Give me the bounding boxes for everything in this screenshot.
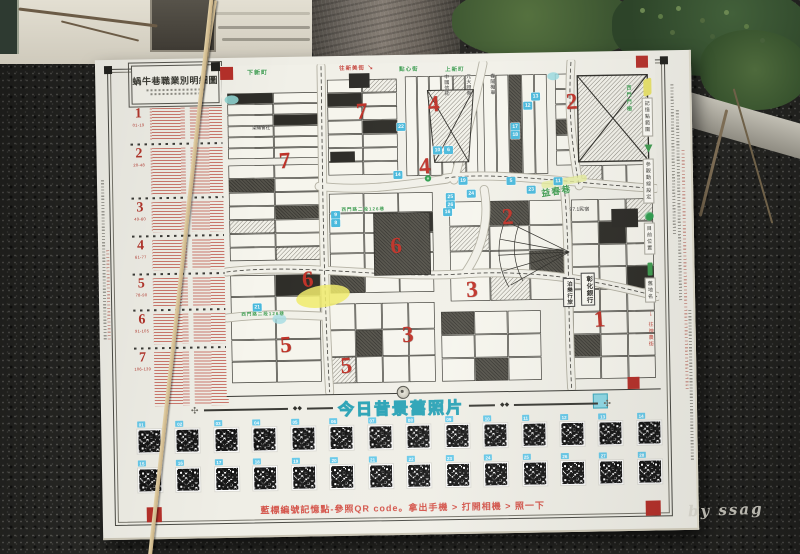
legend-section: 101-19 (130, 106, 225, 142)
street-label: 益春巷 (540, 182, 572, 200)
poi-label: 彰化銀行 (581, 273, 596, 306)
street-label: 點心街 (399, 65, 419, 73)
side-legend-item: 目前位置 (644, 211, 656, 254)
qr-code-section: 0102030405060708091011121314 15161718192… (137, 412, 662, 492)
legend-separator (134, 346, 228, 350)
qr-item: 28 (638, 451, 663, 483)
qr-item: 05 (291, 418, 316, 450)
flourish-icon: ✣ (191, 406, 199, 415)
legend-zone-range: 106-139 (134, 366, 151, 371)
oldname-bar-icon (647, 262, 652, 275)
qr-code (638, 459, 662, 483)
qr-number-chip: 12 (560, 414, 568, 420)
qr-code (406, 424, 430, 448)
title-subtext-line (146, 88, 204, 91)
qr-number-chip: 09 (445, 416, 453, 422)
qr-number-chip: 10 (483, 415, 491, 421)
legend-section: 220-48 (130, 146, 225, 196)
qr-item: 04 (253, 419, 278, 451)
qr-item: 13 (599, 413, 624, 445)
qr-code (137, 429, 161, 453)
qr-item: 19 (292, 457, 317, 489)
legend-zone-range: 78-90 (136, 292, 148, 297)
qr-number-chip: 15 (138, 460, 146, 466)
qr-number-chip: 02 (176, 421, 184, 427)
zone-number: 5 (279, 332, 292, 359)
qr-item: 02 (176, 420, 201, 452)
qr-item: 27 (599, 452, 624, 484)
legend-zone-number: 2 (135, 147, 142, 161)
qr-item: 18 (253, 458, 278, 490)
zone-number: 3 (401, 321, 414, 348)
qr-item: 03 (214, 420, 239, 452)
qr-number-chip: 23 (445, 455, 453, 461)
stair-shadow (222, 38, 310, 41)
banner-rule (204, 408, 288, 411)
qr-number-chip: 16 (176, 460, 184, 466)
qr-code (292, 465, 316, 489)
zone-number: 1 (593, 306, 606, 333)
legend-separator (131, 196, 225, 200)
banner-rule (469, 405, 495, 407)
legend-zone-range: 61-77 (135, 254, 147, 259)
qr-code (522, 461, 546, 485)
window (0, 0, 19, 54)
stair-shadow (218, 26, 310, 29)
banner-rule (307, 408, 333, 410)
margin-text-strip (682, 150, 689, 390)
qr-number-chip: 14 (637, 413, 645, 419)
map-marker: 5 (506, 177, 515, 185)
legend-zone-number: 1 (135, 107, 142, 121)
qr-item: 09 (445, 416, 470, 448)
map-marker: 25 (446, 193, 455, 201)
qr-number-chip: 26 (561, 453, 569, 459)
map-marker: 24 (467, 190, 476, 198)
legend-zone-range: 01-19 (133, 122, 145, 127)
building-wall (0, 0, 312, 64)
qr-code (176, 428, 200, 452)
zone-number: 7 (355, 98, 368, 125)
qr-code (484, 462, 508, 486)
qr-number-chip: 05 (291, 419, 299, 425)
legend-zone-number: 6 (138, 313, 145, 327)
side-legend-label: 記憶點範圍 (642, 98, 654, 137)
margin-text-strip (676, 110, 682, 300)
zone-number: 7 (278, 148, 291, 175)
qr-number-chip: 01 (137, 421, 145, 427)
legend-zone-number: 4 (137, 239, 144, 253)
qr-item: 17 (215, 459, 240, 491)
legend-item-lines (153, 312, 228, 345)
qr-item: 12 (560, 414, 585, 446)
qr-code (561, 461, 585, 485)
zone-number: 4 (427, 91, 440, 118)
legend-separator (133, 308, 227, 312)
zone-number: 2 (565, 89, 578, 116)
photographer-watermark: by ssag (688, 500, 764, 521)
map-marker: 16 (443, 208, 452, 216)
qr-number-chip: 22 (407, 456, 415, 462)
qr-number-chip: 17 (215, 459, 223, 465)
poi-label: 元大證券 (465, 74, 472, 96)
side-legend-label: 參觀動線設定 (643, 158, 655, 203)
map-marker: 23 (527, 186, 536, 194)
qr-code (176, 467, 200, 491)
zone-number: 4 (418, 153, 431, 180)
qr-number-chip: 03 (214, 420, 222, 426)
map-marker: 18 (511, 131, 520, 139)
qr-number-chip: 24 (484, 454, 492, 460)
legend-item-lines (153, 276, 228, 307)
qr-code (291, 426, 315, 450)
qr-code (637, 420, 661, 444)
hand-drawn-map: 7744226633551221312141061925262416511239… (221, 58, 661, 396)
zone-number: 2 (501, 204, 514, 231)
margin-text-strip (688, 310, 694, 460)
margin-text-strip (670, 84, 676, 234)
qr-number-chip: 13 (599, 413, 607, 419)
side-legend-item: 參觀動線設定 (642, 144, 654, 203)
qr-item: 10 (483, 415, 508, 447)
qr-number-chip: 04 (253, 419, 261, 425)
qr-code (445, 424, 469, 448)
qr-number-chip: 11 (522, 415, 530, 421)
qr-item: 22 (407, 455, 432, 487)
map-marker: 21 (253, 303, 262, 311)
qr-number-chip: 19 (292, 458, 300, 464)
side-legend-label: 往神農街 (646, 319, 656, 349)
qr-number-chip: 27 (599, 452, 607, 458)
flourish-icon: ✣ (603, 399, 611, 408)
qr-code (599, 460, 623, 484)
qr-code (446, 463, 470, 487)
legend-separator (130, 142, 224, 146)
leaves (640, 8, 645, 13)
side-legend-item: 舊地名 (644, 262, 656, 303)
map-corner-black-square (211, 62, 220, 71)
legend-separator (132, 234, 226, 238)
qr-item: 26 (561, 453, 586, 485)
qr-number-chip: 25 (522, 454, 530, 460)
diamond-icon: ◆◆ (500, 402, 509, 408)
qr-code (253, 466, 277, 490)
foliage (700, 30, 800, 110)
frame-corner-square (104, 66, 112, 74)
qr-item: 21 (369, 456, 394, 488)
qr-number-chip: 08 (406, 417, 414, 423)
zone-number: 5 (340, 353, 353, 380)
legend-section: 691-105 (133, 312, 228, 346)
qr-item: 23 (445, 455, 470, 487)
map-marker: 10 (433, 146, 442, 154)
qr-item: 08 (406, 416, 431, 448)
qr-number-chip: 18 (253, 458, 261, 464)
side-legend-item: 往神農街 (646, 310, 656, 349)
legend-section: 349-60 (131, 200, 226, 234)
legend-zone-range: 20-48 (133, 162, 145, 167)
qr-code (214, 428, 238, 452)
legend-item-lines (150, 106, 225, 141)
poi-label: 中國信託 (443, 74, 450, 96)
legend-zone-number: 5 (138, 277, 145, 291)
qr-code (599, 421, 623, 445)
map-corner-red-square (636, 56, 648, 68)
zone-number: 6 (301, 266, 314, 293)
qr-code (330, 426, 354, 450)
street-label: 上新町 (445, 65, 465, 73)
map-marker: 13 (531, 92, 540, 100)
qr-number-chip: 21 (369, 456, 377, 462)
map-marker: 8 (331, 219, 340, 227)
banner-rule (514, 403, 598, 406)
zone-number: 3 (465, 276, 478, 303)
qr-code (215, 467, 239, 491)
poi-label: 泊樂行旅 (563, 278, 576, 307)
photo-of-map-board: 蝸牛巷職業別明細圖 101-19220-48349-60461-77578-90… (0, 0, 800, 554)
to-street-arrow-icon (649, 311, 653, 318)
map-marker: 12 (523, 102, 532, 110)
legend-item-lines (152, 238, 227, 271)
map-marker: 22 (396, 123, 405, 131)
qr-code (407, 463, 431, 487)
qr-item: 14 (637, 412, 662, 444)
diamond-icon: ◆◆ (293, 406, 302, 412)
qr-item: 16 (176, 459, 201, 491)
map-overlay: 7744226633551221312141061925262416511239… (221, 58, 661, 396)
stair-shadow (215, 12, 310, 15)
poi-label: 春陽機車 (489, 73, 496, 95)
map-corner-red-square (627, 377, 639, 389)
qr-item: 07 (368, 417, 393, 449)
side-legend-label: 目前位置 (644, 222, 656, 254)
qr-item: 20 (330, 457, 355, 489)
qr-item: 24 (484, 454, 509, 486)
map-board: 蝸牛巷職業別明細圖 101-19220-48349-60461-77578-90… (95, 50, 699, 540)
qr-code (483, 423, 507, 447)
map-side-legend: 記憶點範圍參觀動線設定目前位置舊地名往神農街 (633, 78, 665, 349)
map-corner-red-square (220, 67, 233, 80)
qr-item: 25 (522, 453, 547, 485)
side-legend-label: 舊地名 (645, 277, 656, 303)
qr-number-chip: 06 (329, 418, 337, 424)
map-marker: 6 (444, 146, 453, 154)
location-dot-icon (645, 211, 654, 220)
qr-item: 01 (137, 421, 162, 453)
qr-number-chip: 28 (638, 452, 646, 458)
qr-code (368, 425, 392, 449)
yellow-swatch-icon (643, 77, 651, 97)
qr-code (560, 422, 584, 446)
street-label: 往新美街 (339, 63, 374, 72)
legend-zone-number: 7 (139, 351, 146, 365)
qr-code (522, 422, 546, 446)
legend-sections: 101-19220-48349-60461-77578-90691-105710… (130, 106, 229, 408)
map-marker: 9 (331, 211, 340, 219)
map-marker: 17 (511, 123, 520, 131)
zone-number: 6 (390, 233, 403, 260)
street-label: 下新町 (247, 67, 268, 76)
poi-label: 97.1民宿 (569, 206, 589, 213)
street-label: 西門門柵 (625, 85, 632, 113)
qr-code (369, 464, 393, 488)
qr-code (253, 427, 277, 451)
qr-number-chip: 07 (368, 417, 376, 423)
legend-zone-number: 3 (136, 201, 143, 215)
map-marker: 14 (393, 171, 402, 179)
side-legend-item: 記憶點範圍 (641, 79, 653, 137)
route-arrow-icon (644, 144, 652, 156)
qr-number-chip: 20 (330, 457, 338, 463)
poi-label: 染織會社 (252, 125, 270, 131)
qr-item: 06 (329, 418, 354, 450)
qr-item: 11 (522, 414, 547, 446)
street-label: 西門路二段126巷 (341, 206, 385, 213)
legend-zone-range: 91-105 (135, 328, 149, 333)
street-label: 西門路二段126巷 (241, 311, 285, 318)
frame-corner-square (660, 56, 668, 64)
map-marker: 19 (458, 177, 467, 185)
qr-code (330, 465, 354, 489)
title-subtext-line (151, 92, 201, 95)
legend-zone-range: 49-60 (134, 216, 146, 221)
